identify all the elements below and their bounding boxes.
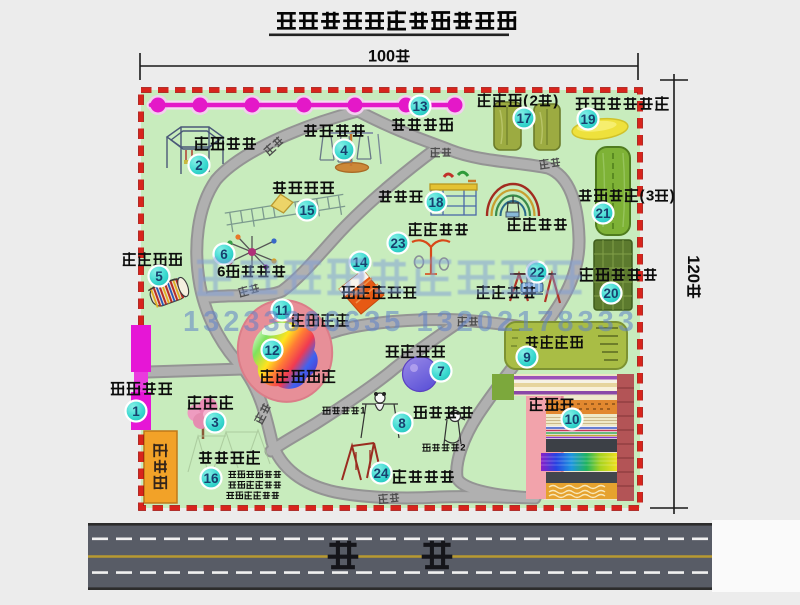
svg-text:10: 10	[564, 412, 579, 427]
svg-text:): )	[553, 93, 558, 110]
svg-text:15: 15	[299, 203, 315, 218]
svg-text:5: 5	[155, 269, 163, 284]
svg-text:19: 19	[580, 112, 595, 127]
svg-text:2: 2	[684, 265, 703, 274]
svg-text:2: 2	[530, 93, 538, 110]
svg-text:3: 3	[646, 188, 654, 205]
svg-text:21: 21	[595, 206, 611, 221]
svg-text:2: 2	[460, 443, 465, 454]
svg-text:20: 20	[603, 286, 618, 301]
svg-text:4: 4	[340, 143, 348, 158]
svg-text:9: 9	[523, 350, 531, 365]
svg-text:7: 7	[437, 364, 445, 379]
svg-text:17: 17	[516, 111, 531, 126]
svg-text:0: 0	[377, 47, 386, 65]
svg-text:1: 1	[368, 47, 377, 65]
svg-text:24: 24	[373, 466, 389, 481]
svg-text:1: 1	[684, 255, 703, 264]
svg-text:2: 2	[195, 158, 203, 173]
svg-text:0: 0	[684, 274, 703, 283]
svg-text:12: 12	[264, 343, 279, 358]
svg-text:3: 3	[211, 415, 219, 430]
svg-text:23: 23	[390, 236, 406, 251]
svg-text:8: 8	[398, 416, 406, 431]
svg-text:0: 0	[386, 47, 395, 65]
svg-text:16: 16	[203, 471, 219, 486]
svg-text:18: 18	[428, 195, 444, 210]
svg-text:1: 1	[132, 404, 140, 419]
svg-text:1: 1	[360, 406, 366, 417]
svg-text:13: 13	[412, 99, 428, 114]
svg-text:13233806635 13202178333: 13233806635 13202178333	[183, 306, 638, 338]
